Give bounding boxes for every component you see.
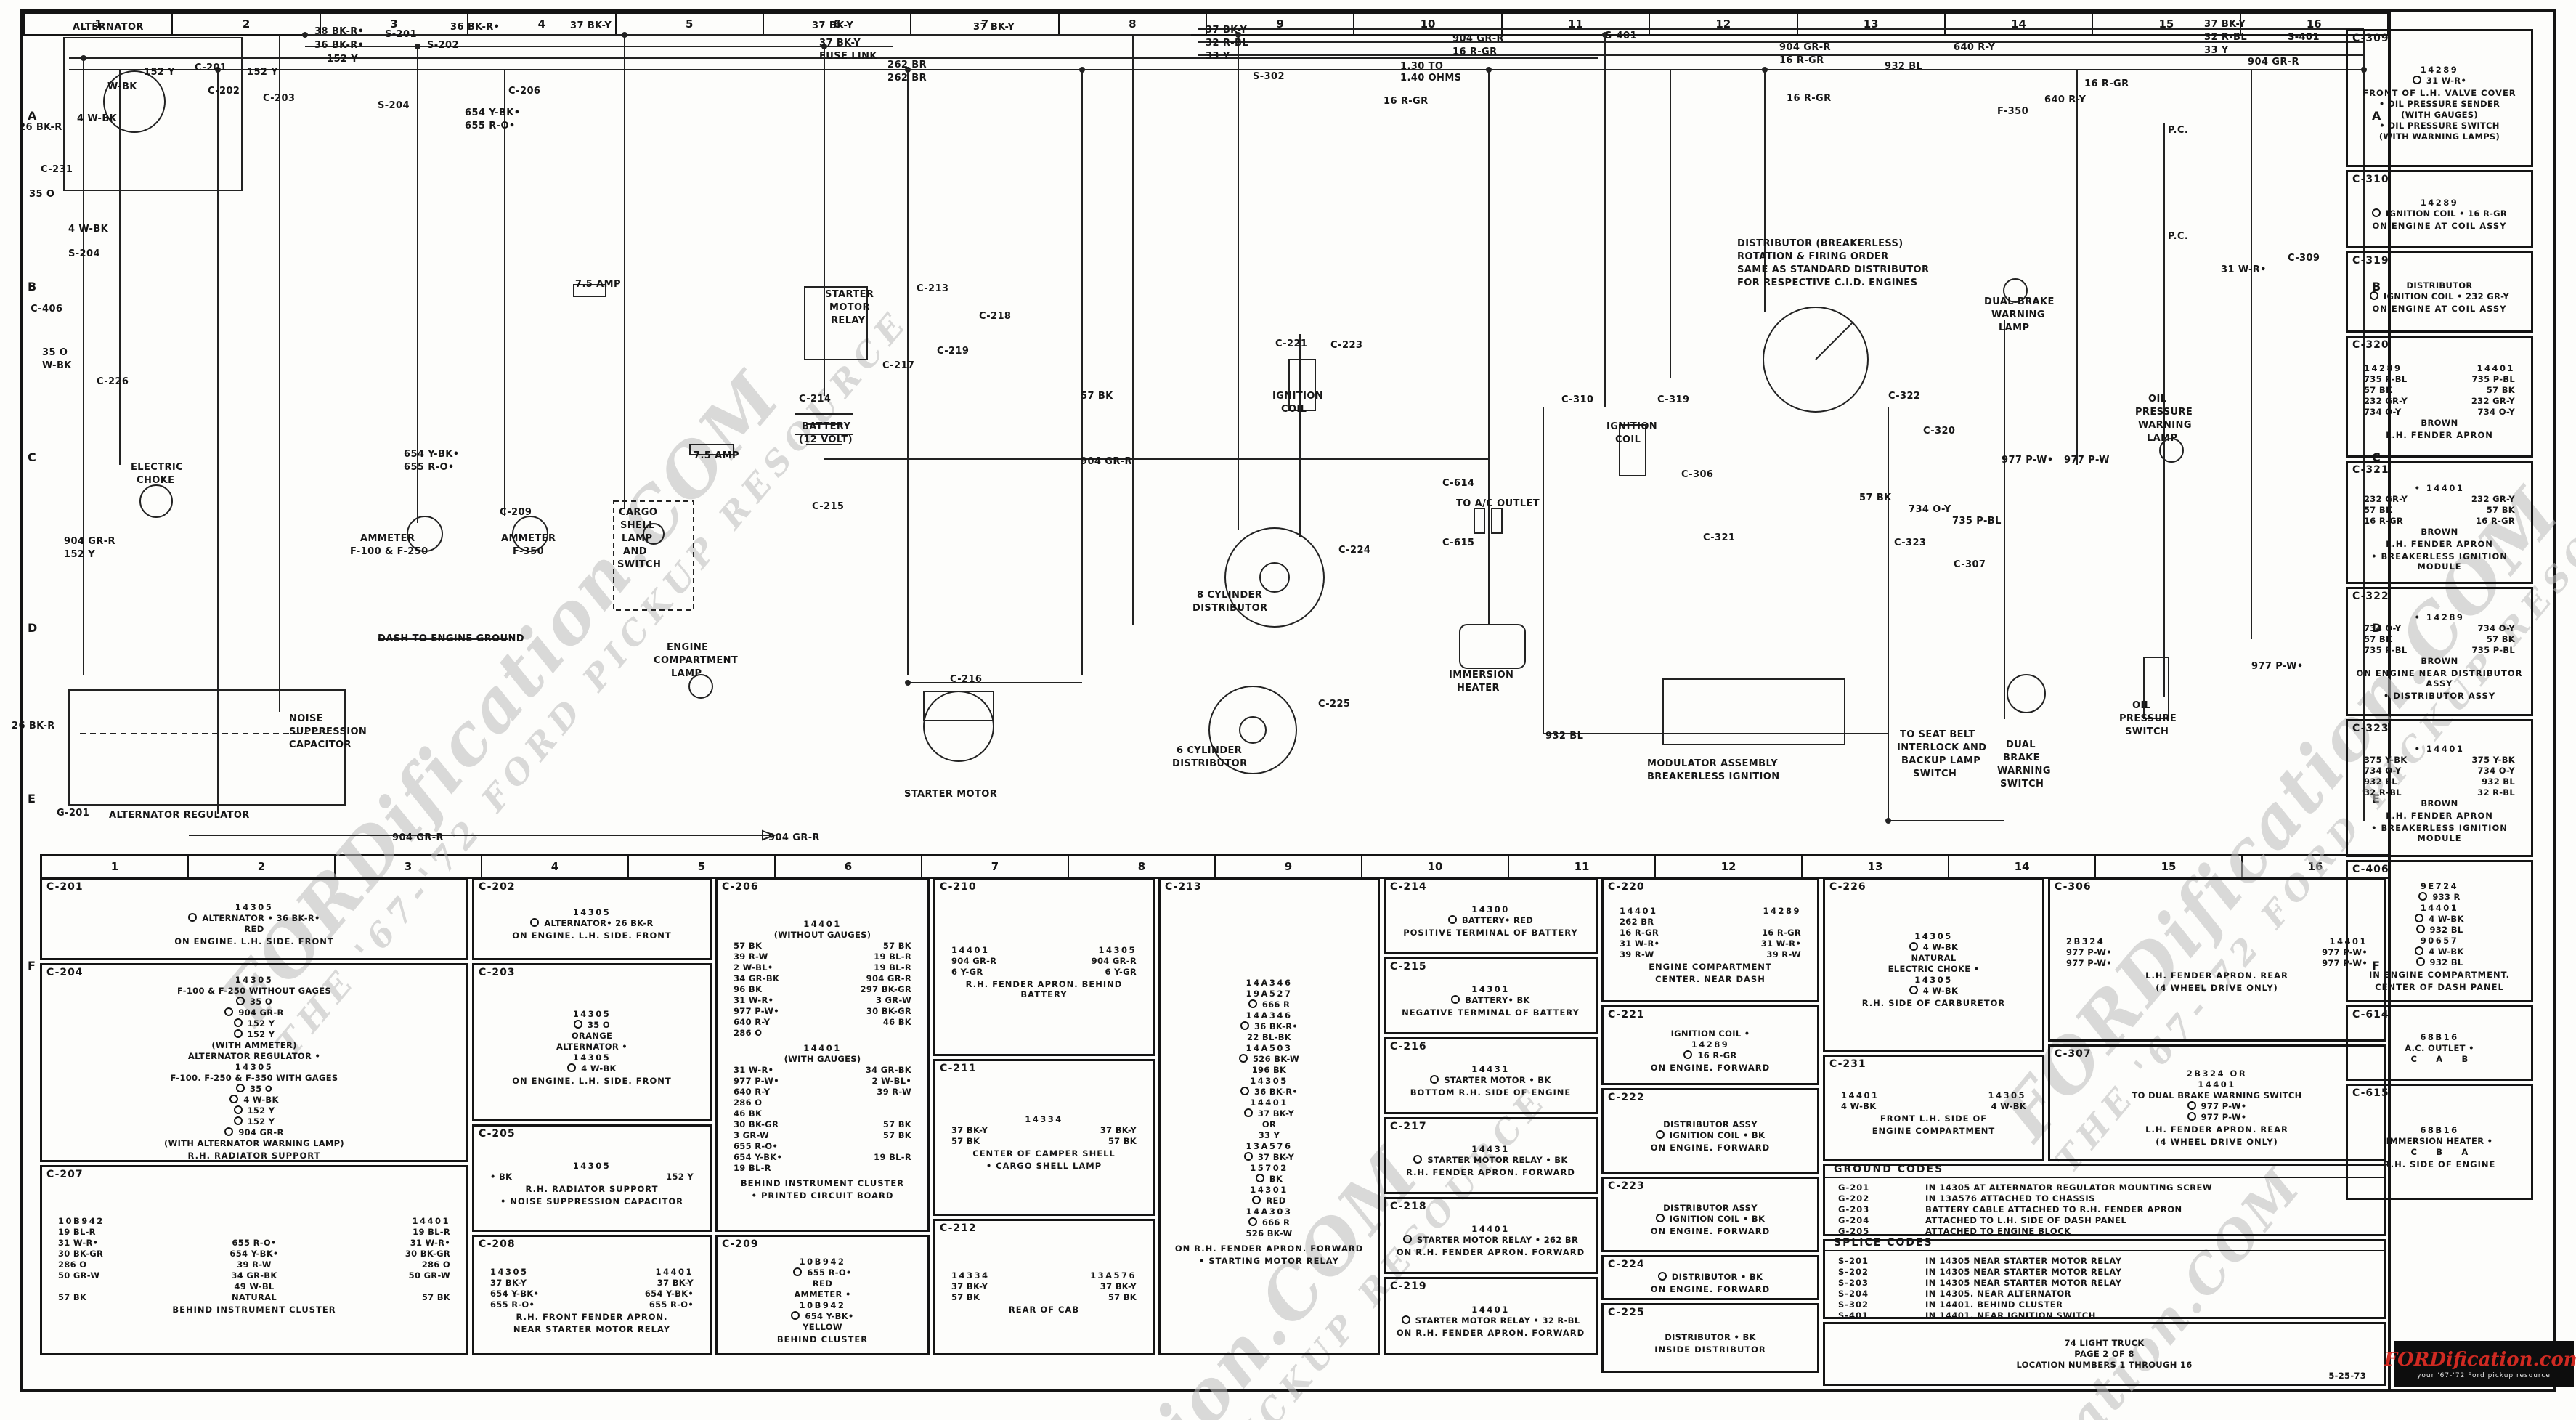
box-line: L.H. FENDER APRON bbox=[2354, 539, 2525, 549]
schematic-label: COMPARTMENT bbox=[654, 655, 738, 666]
box-line: 14305 bbox=[48, 975, 460, 985]
schematic-label: 7.5 AMP bbox=[694, 450, 739, 461]
schematic-label: IGNITION bbox=[1272, 391, 1323, 402]
box-line: ON ENGINE NEAR DISTRIBUTOR ASSY bbox=[2354, 668, 2525, 689]
box-line: 655 R-O• bbox=[723, 1267, 922, 1278]
detail-box-C-321: C-321• 14401232 GR-Y232 GR-Y57 BK57 BK16… bbox=[2346, 461, 2533, 584]
box-line: 90657 bbox=[2354, 936, 2525, 946]
box-line: ALTERNATOR • 36 BK-R• bbox=[48, 913, 460, 923]
schematic-label: DISTRIBUTOR bbox=[1172, 758, 1248, 769]
detail-box-C-214: C-21414300BATTERY• REDPOSITIVE TERMINAL … bbox=[1384, 877, 1598, 954]
schematic-label: F-350 bbox=[513, 546, 544, 557]
box-line: 286 O39 R-W286 O bbox=[48, 1259, 460, 1270]
detail-box-C-204: C-20414305F-100 & F-250 WITHOUT GAGES35 … bbox=[40, 963, 468, 1162]
schematic-label: C-217 bbox=[882, 360, 914, 371]
schematic-label: 640 R-Y bbox=[1954, 42, 1995, 53]
schematic-label: 152 Y bbox=[327, 54, 358, 65]
schematic-label: ROTATION & FIRING ORDER bbox=[1737, 251, 1889, 262]
schematic-label: SHELL bbox=[620, 520, 655, 531]
box-line: 152 Y bbox=[48, 1116, 460, 1127]
box-line: 37 BK-Y37 BK-Y bbox=[941, 1281, 1147, 1291]
box-line: IN ENGINE COMPARTMENT. bbox=[2354, 970, 2525, 980]
box-line: 5-25-73 bbox=[1831, 1371, 2378, 1381]
box-line: RED bbox=[723, 1278, 922, 1289]
box-line: 977 P-W•30 BK-GR bbox=[723, 1006, 922, 1016]
box-line: 977 P-W•977 P-W• bbox=[2056, 958, 2378, 968]
box-line: (WITHOUT GAUGES) bbox=[723, 930, 922, 940]
box-line: • BREAKERLESS IGNITION MODULE bbox=[2354, 823, 2525, 843]
box-line: 13A576 bbox=[1166, 1141, 1372, 1151]
box-line: STARTER MOTOR RELAY • 32 R-BL bbox=[1391, 1315, 1590, 1326]
box-line: 977 P-W• bbox=[2056, 1112, 2378, 1122]
detail-box-C-223: C-223DISTRIBUTOR ASSYIGNITION COIL • BKO… bbox=[1601, 1177, 1819, 1252]
box-id-label: C-219 bbox=[1390, 1281, 1427, 1292]
box-line: L.H. FENDER APRON bbox=[2354, 430, 2525, 440]
schematic-label: RELAY bbox=[831, 315, 865, 326]
schematic-label: C-213 bbox=[917, 283, 948, 294]
box-line: 666 R bbox=[1166, 999, 1372, 1010]
box-line: 35 O bbox=[48, 1084, 460, 1094]
schematic-label: STARTER bbox=[825, 289, 874, 300]
box-line: ON ENGINE. L.H. SIDE. FRONT bbox=[48, 936, 460, 946]
box-line: STARTER MOTOR • BK bbox=[1391, 1075, 1590, 1085]
schematic-label: C-215 bbox=[812, 501, 844, 512]
box-line: (4 WHEEL DRIVE ONLY) bbox=[2056, 983, 2378, 993]
schematic-label: C-206 bbox=[508, 86, 540, 97]
detail-box-C-209: C-20910B942655 R-O•REDAMMETER •10B942654… bbox=[715, 1235, 930, 1355]
schematic-label: DISTRIBUTOR (BREAKERLESS) bbox=[1737, 238, 1903, 249]
schematic-label: STARTER MOTOR bbox=[904, 789, 997, 800]
schematic-label: 7.5 AMP bbox=[575, 279, 621, 290]
schematic-label: C-209 bbox=[500, 507, 532, 518]
schematic-label: 932 BL bbox=[1885, 61, 1922, 72]
schematic-label: FUSE LINK bbox=[819, 51, 877, 62]
box-id-label: C-205 bbox=[479, 1128, 516, 1140]
detail-box-C-322: C-322• 14289734 O-Y734 O-Y57 BK57 BK735 … bbox=[2346, 587, 2533, 716]
detail-box-C-307: C-3072B324 OR14401TO DUAL BRAKE WARNING … bbox=[2048, 1044, 2386, 1161]
box-id-label: C-203 bbox=[479, 967, 516, 978]
schematic-label: 904 GR-R bbox=[1452, 33, 1504, 44]
box-line: 68B16 bbox=[2354, 1125, 2525, 1135]
box-line: R.H. FENDER APRON. FORWARD bbox=[1391, 1167, 1590, 1177]
schematic-label: TO A/C OUTLET bbox=[1456, 498, 1540, 509]
box-line: NATURAL bbox=[1831, 953, 2036, 963]
box-line: 14431 bbox=[1391, 1064, 1590, 1074]
box-line: 655 R-O•655 R-O• bbox=[480, 1299, 704, 1310]
detail-box-C-210: C-2101440114305904 GR-R904 GR-R6 Y-GR6 Y… bbox=[933, 877, 1155, 1056]
box-line: 39 R-W39 R-W bbox=[1609, 949, 1811, 959]
schematic-label: 977 P-W• bbox=[2002, 455, 2054, 466]
box-line: 4 W-BK4 W-BK bbox=[1831, 1101, 2036, 1111]
box-id-label: C-202 bbox=[479, 881, 516, 893]
schematic-label: 16 R-GR bbox=[1787, 93, 1832, 104]
schematic-label: 32 R-BL bbox=[1206, 38, 1248, 49]
schematic-label: P.C. bbox=[2168, 231, 2188, 242]
schematic-label: C-615 bbox=[1442, 537, 1474, 548]
schematic-label: 26 BK-R bbox=[12, 721, 55, 731]
box-line: 16 R-GR bbox=[1609, 1050, 1811, 1060]
box-line: 232 GR-Y232 GR-Y bbox=[2354, 494, 2525, 504]
schematic-label: C-231 bbox=[41, 164, 73, 175]
box-line: S-203IN 14305 NEAR STARTER MOTOR RELAY bbox=[1831, 1278, 2378, 1288]
schematic-label: W-BK bbox=[42, 360, 72, 371]
schematic-label: 16 R-GR bbox=[1452, 46, 1498, 57]
detail-box-C-226: C-226143054 W-BKNATURALELECTRIC CHOKE •1… bbox=[1823, 877, 2044, 1052]
box-line: 14289 bbox=[2354, 198, 2525, 208]
schematic-label: 37 BK-Y bbox=[2204, 19, 2246, 30]
box-line: 16 R-GR16 R-GR bbox=[2354, 516, 2525, 526]
detail-box-C-219: C-21914401STARTER MOTOR RELAY • 32 R-BLO… bbox=[1384, 1277, 1598, 1355]
schematic-label: P.C. bbox=[2168, 125, 2188, 136]
box-line: 10B942 bbox=[723, 1300, 922, 1310]
box-line: G-205ATTACHED TO ENGINE BLOCK bbox=[1831, 1226, 2378, 1236]
schematic-label: DUAL BRAKE bbox=[1984, 296, 2055, 307]
schematic-label: 57 BK bbox=[1859, 492, 1892, 503]
schematic-label: 37 BK-Y bbox=[973, 22, 1015, 33]
box-line: 14334 bbox=[941, 1114, 1147, 1124]
box-line: 14431 bbox=[1391, 1144, 1590, 1154]
box-line: BATTERY• RED bbox=[1391, 915, 1590, 925]
box-line: INSIDE DISTRIBUTOR bbox=[1609, 1344, 1811, 1355]
box-line: ELECTRIC CHOKE • bbox=[1831, 964, 2036, 974]
schematic-label: 904 GR-R bbox=[1779, 42, 1831, 53]
box-line: 904 GR-R bbox=[48, 1127, 460, 1137]
box-line: 2B324 OR bbox=[2056, 1068, 2378, 1079]
box-line: 1428914401 bbox=[2354, 363, 2525, 373]
box-id-label: C-208 bbox=[479, 1238, 516, 1250]
panel-TITLE: 74 LIGHT TRUCKPAGE 2 OF 8LOCATION NUMBER… bbox=[1823, 1322, 2386, 1386]
schematic-label: C-214 bbox=[799, 394, 831, 405]
schematic-label: PRESSURE bbox=[2119, 713, 2177, 724]
box-line: 932 BL932 BL bbox=[2354, 776, 2525, 787]
box-line: • BK152 Y bbox=[480, 1172, 704, 1182]
schematic-label: C-406 bbox=[31, 304, 62, 315]
schematic-label: CARGO bbox=[619, 507, 657, 518]
schematic-label: 6 CYLINDER bbox=[1177, 745, 1242, 756]
schematic-label: IGNITION bbox=[1606, 421, 1657, 432]
detail-box-C-213: C-21314A34619A527666 R14A34636 BK-R•22 B… bbox=[1158, 877, 1380, 1355]
box-line: IGNITION COIL • BK bbox=[1609, 1130, 1811, 1140]
schematic-label: 38 BK-R• bbox=[314, 26, 364, 37]
box-line: 1430514401 bbox=[480, 1267, 704, 1277]
box-id-label: C-212 bbox=[940, 1222, 977, 1234]
box-line: AMMETER • bbox=[723, 1289, 922, 1299]
box-line: 10B942 bbox=[723, 1257, 922, 1267]
box-line: STARTER MOTOR RELAY • 262 BR bbox=[1391, 1235, 1590, 1245]
detail-box-C-207: C-20710B9421440119 BL-R19 BL-R31 W-R•655… bbox=[40, 1165, 468, 1355]
detail-box-C-221: C-221IGNITION COIL •1428916 R-GRON ENGIN… bbox=[1601, 1005, 1819, 1085]
schematic-label: CAPACITOR bbox=[289, 739, 352, 750]
schematic-label: BATTERY bbox=[802, 421, 850, 432]
schematic-label: 57 BK bbox=[1081, 391, 1113, 402]
box-line: 14401 bbox=[2354, 903, 2525, 913]
schematic-label: C-219 bbox=[937, 346, 969, 357]
box-line: 14289 bbox=[1609, 1039, 1811, 1050]
box-line: 36 BK-R• bbox=[1166, 1021, 1372, 1031]
detail-box-C-222: C-222DISTRIBUTOR ASSYIGNITION COIL • BKO… bbox=[1601, 1088, 1819, 1174]
box-line: G-204ATTACHED TO L.H. SIDE OF DASH PANEL bbox=[1831, 1215, 2378, 1225]
box-line: 1440114289 bbox=[1609, 906, 1811, 916]
box-line: DISTRIBUTOR ASSY bbox=[1609, 1119, 1811, 1129]
box-id-label: C-218 bbox=[1390, 1201, 1427, 1212]
schematic-label: AMMETER bbox=[501, 533, 556, 544]
schematic-label: AND bbox=[623, 546, 647, 557]
detail-box-C-203: C-2031430535 OORANGEALTERNATOR •143054 W… bbox=[472, 963, 712, 1121]
schematic-label: 36 BK-R• bbox=[314, 40, 364, 51]
box-line: 655 R-O• bbox=[723, 1141, 922, 1151]
schematic-label: 654 Y-BK• bbox=[465, 107, 520, 118]
box-id-label: C-214 bbox=[1390, 881, 1427, 893]
schematic-label: LAMP bbox=[1999, 322, 2029, 333]
detail-box-C-206: C-20614401(WITHOUT GAUGES)57 BK57 BK39 R… bbox=[715, 877, 930, 1232]
box-line: ON ENGINE. FORWARD bbox=[1609, 1284, 1811, 1294]
box-line: ON ENGINE AT COIL ASSY bbox=[2354, 221, 2525, 231]
detail-box-C-211: C-2111433437 BK-Y37 BK-Y57 BK57 BKCENTER… bbox=[933, 1059, 1155, 1216]
schematic-label: 33 Y bbox=[2204, 45, 2229, 56]
box-line: 654 Y-BK•654 Y-BK• bbox=[480, 1289, 704, 1299]
box-line: R.H. RADIATOR SUPPORT bbox=[48, 1151, 460, 1161]
box-line: OR bbox=[1166, 1119, 1372, 1129]
schematic-label: OIL bbox=[2132, 700, 2150, 711]
schematic-label: 8 CYLINDER bbox=[1197, 590, 1262, 601]
fordification-logo: FORDification.com your '67-'72 Ford pick… bbox=[2394, 1341, 2574, 1387]
box-line: 4 W-BK bbox=[1831, 986, 2036, 996]
box-line: A.C. OUTLET • bbox=[2354, 1043, 2525, 1053]
schematic-label: WARNING bbox=[1997, 766, 2051, 776]
detail-box-C-205: C-20514305• BK152 YR.H. RADIATOR SUPPORT… bbox=[472, 1124, 712, 1232]
box-line: 14A346 bbox=[1166, 978, 1372, 988]
box-line: BEHIND INSTRUMENT CLUSTER bbox=[723, 1178, 922, 1188]
box-line: ON R.H. FENDER APRON. FORWARD bbox=[1391, 1328, 1590, 1338]
box-line: (WITH AMMETER) bbox=[48, 1040, 460, 1050]
box-id-label: C-309 bbox=[2352, 33, 2389, 44]
box-line: 14401 bbox=[2056, 1079, 2378, 1090]
box-line: 2B32414401 bbox=[2056, 936, 2378, 946]
box-line: • NOISE SUPPRESSION CAPACITOR bbox=[480, 1196, 704, 1206]
box-line: 734 O-Y734 O-Y bbox=[2354, 766, 2525, 776]
box-line: G-203BATTERY CABLE ATTACHED TO R.H. FEND… bbox=[1831, 1204, 2378, 1214]
box-line: ORANGE bbox=[480, 1031, 704, 1041]
schematic-label: C-216 bbox=[950, 674, 982, 685]
schematic-label: C-322 bbox=[1888, 391, 1920, 402]
schematic-label: OIL bbox=[2148, 394, 2166, 405]
box-line: 654 Y-BK•19 BL-R bbox=[723, 1152, 922, 1162]
detail-box-C-319: C-319DISTRIBUTORIGNITION COIL • 232 GR-Y… bbox=[2346, 251, 2533, 333]
schematic-label: 904 GR-R bbox=[768, 832, 820, 843]
box-line: LOCATION NUMBERS 1 THROUGH 16 bbox=[1831, 1360, 2378, 1370]
schematic-label: LAMP bbox=[2147, 433, 2177, 444]
box-line: 232 GR-Y232 GR-Y bbox=[2354, 396, 2525, 406]
box-line: 57 BK57 BK bbox=[941, 1136, 1147, 1146]
box-line: IMMERSION HEATER • bbox=[2354, 1136, 2525, 1146]
box-line: 15702 bbox=[1166, 1163, 1372, 1173]
box-line: 57 BK57 BK bbox=[2354, 505, 2525, 515]
box-line: 37 BK-Y bbox=[1166, 1152, 1372, 1162]
box-line: 14301 bbox=[1166, 1185, 1372, 1195]
schematic-label: BRAKE bbox=[2003, 752, 2040, 763]
box-line: ON ENGINE AT COIL ASSY bbox=[2354, 304, 2525, 314]
box-line: 904 GR-R904 GR-R bbox=[941, 956, 1147, 966]
box-line: 14289 bbox=[2354, 65, 2525, 75]
schematic-label: 735 P-BL bbox=[1952, 516, 2002, 527]
box-line: TO DUAL BRAKE WARNING SWITCH bbox=[2056, 1090, 2378, 1100]
schematic-label: F-350 bbox=[1997, 106, 2028, 117]
box-id-label: C-307 bbox=[2055, 1048, 2092, 1060]
schematic-label: SWITCH bbox=[617, 559, 661, 570]
box-line: POSITIVE TERMINAL OF BATTERY bbox=[1391, 928, 1590, 938]
box-line: 4 W-BK bbox=[48, 1095, 460, 1105]
schematic-label: 35 O bbox=[29, 189, 54, 200]
logo-title: FORDification.com bbox=[2384, 1349, 2576, 1371]
schematic-label: C-203 bbox=[263, 93, 295, 104]
box-line: 14305 bbox=[1166, 1076, 1372, 1086]
box-line: ALTERNATOR• 26 BK-R bbox=[480, 918, 704, 928]
box-line: 9E724 bbox=[2354, 881, 2525, 891]
box-line: ENGINE COMPARTMENT bbox=[1831, 1126, 2036, 1136]
schematic-label: C-223 bbox=[1330, 340, 1362, 351]
box-line: 286 O bbox=[723, 1028, 922, 1038]
schematic-label: IMMERSION bbox=[1449, 670, 1513, 681]
box-line: DISTRIBUTOR • BK bbox=[1609, 1332, 1811, 1342]
schematic-label: NOISE bbox=[289, 713, 323, 724]
box-line: ON ENGINE. FORWARD bbox=[1609, 1143, 1811, 1153]
box-line: 286 O bbox=[723, 1098, 922, 1108]
box-line: ON R.H. FENDER APRON. FORWARD bbox=[1166, 1243, 1372, 1254]
box-id-label: C-207 bbox=[46, 1169, 84, 1180]
schematic-label: 640 R-Y bbox=[2044, 94, 2086, 105]
schematic-label: FOR RESPECTIVE C.I.D. ENGINES bbox=[1737, 277, 1917, 288]
logo-tagline: your '67-'72 Ford pickup resource bbox=[2417, 1372, 2551, 1379]
schematic-label: AMMETER bbox=[360, 533, 415, 544]
schematic-label: BREAKERLESS IGNITION bbox=[1647, 771, 1780, 782]
schematic-label: 4 W-BK bbox=[68, 224, 108, 235]
box-line: 74 LIGHT TRUCK bbox=[1831, 1338, 2378, 1348]
schematic-label: ALTERNATOR REGULATOR bbox=[109, 810, 250, 821]
box-id-label: C-321 bbox=[2352, 464, 2389, 476]
box-line: L.H. FENDER APRON. REAR bbox=[2056, 1124, 2378, 1135]
box-line: 3 GR-W57 BK bbox=[723, 1130, 922, 1140]
schematic-label: C-321 bbox=[1703, 532, 1735, 543]
box-line: • BREAKERLESS IGNITION MODULE bbox=[2354, 551, 2525, 572]
box-line: 2 W-BL•19 BL-R bbox=[723, 962, 922, 973]
schematic-label: 1.30 TO bbox=[1400, 61, 1443, 72]
box-id-label: C-206 bbox=[722, 881, 759, 893]
panel-GROUND CODES: GROUND CODESG-201IN 14305 AT ALTERNATOR … bbox=[1823, 1164, 2386, 1236]
box-line: CENTER OF DASH PANEL bbox=[2354, 982, 2525, 992]
box-line: (WITH GAUGES) bbox=[723, 1054, 922, 1064]
schematic-label: 16 R-GR bbox=[1384, 96, 1429, 107]
box-line: 734 O-Y734 O-Y bbox=[2354, 407, 2525, 417]
box-line: CBA bbox=[2354, 1147, 2525, 1157]
box-line: G-202IN 13A576 ATTACHED TO CHASSIS bbox=[1831, 1193, 2378, 1204]
schematic-label: W-BK bbox=[107, 81, 137, 92]
box-line: 16 R-GR16 R-GR bbox=[1609, 928, 1811, 938]
box-line: 977 P-W• bbox=[2056, 1101, 2378, 1111]
box-line: 933 R bbox=[2354, 892, 2525, 902]
box-id-label: C-320 bbox=[2352, 339, 2389, 351]
box-line: • STARTING MOTOR RELAY bbox=[1166, 1256, 1372, 1266]
box-line: • DISTRIBUTOR ASSY bbox=[2354, 691, 2525, 701]
box-line: 152 Y bbox=[48, 1029, 460, 1039]
schematic-label: C-226 bbox=[97, 376, 129, 387]
box-line: 14A346 bbox=[1166, 1010, 1372, 1021]
box-line: R.H. FENDER APRON. BEHIND BATTERY bbox=[941, 979, 1147, 999]
detail-box-C-212: C-2121433413A57637 BK-Y37 BK-Y57 BK57 BK… bbox=[933, 1219, 1155, 1355]
box-line: F-100 & F-250 WITHOUT GAGES bbox=[48, 986, 460, 996]
box-line: 14305 bbox=[480, 1052, 704, 1063]
box-line: S-202IN 14305 NEAR STARTER MOTOR RELAY bbox=[1831, 1267, 2378, 1277]
schematic-label: C-306 bbox=[1681, 469, 1713, 480]
box-line: • 14401 bbox=[2354, 483, 2525, 493]
schematic-label: WARNING bbox=[2138, 420, 2192, 431]
box-line: 14A303 bbox=[1166, 1206, 1372, 1217]
schematic-label: 35 O bbox=[42, 347, 68, 358]
schematic-label: PRESSURE bbox=[2135, 407, 2193, 418]
box-line: 14A503 bbox=[1166, 1043, 1372, 1053]
box-line: 262 BR bbox=[1609, 917, 1811, 927]
box-line: REAR OF CAB bbox=[941, 1305, 1147, 1315]
schematic-label: ELECTRIC bbox=[131, 462, 183, 473]
box-line: 1440114305 bbox=[1831, 1090, 2036, 1100]
schematic-label: 977 P-W• bbox=[2251, 661, 2304, 672]
box-line: L.H. FENDER APRON. REAR bbox=[2056, 970, 2378, 981]
box-line: 33 Y bbox=[1166, 1130, 1372, 1140]
schematic-label: S-401 bbox=[2288, 32, 2320, 43]
box-line: G-201IN 14305 AT ALTERNATOR REGULATOR MO… bbox=[1831, 1182, 2378, 1193]
detail-box-C-231: C-23114401143054 W-BK4 W-BKFRONT L.H. SI… bbox=[1823, 1055, 2044, 1161]
box-line: RED bbox=[48, 924, 460, 934]
box-line: 152 Y bbox=[48, 1105, 460, 1116]
box-line: 37 BK-Y bbox=[1166, 1108, 1372, 1119]
box-id-label: C-223 bbox=[1608, 1180, 1645, 1192]
box-line: (WITH GAUGES) bbox=[2354, 110, 2525, 120]
box-id-label: C-221 bbox=[1608, 1009, 1645, 1021]
box-line: 57 BK57 BK bbox=[941, 1292, 1147, 1302]
box-line: 14305 bbox=[48, 1062, 460, 1072]
box-line: BEHIND INSTRUMENT CLUSTER bbox=[48, 1305, 460, 1315]
box-line: 640 R-Y39 R-W bbox=[723, 1087, 922, 1097]
box-id-label: C-323 bbox=[2352, 723, 2389, 734]
box-line: SPLICE CODES bbox=[1825, 1238, 2384, 1251]
schematic-label: CHOKE bbox=[137, 475, 174, 486]
schematic-label: C-310 bbox=[1561, 394, 1593, 405]
schematic-label: DISTRIBUTOR bbox=[1192, 603, 1268, 614]
box-line: ON R.H. FENDER APRON. FORWARD bbox=[1391, 1247, 1590, 1257]
box-line: 14305 bbox=[1831, 931, 2036, 941]
schematic-label: 904 GR-R bbox=[2248, 57, 2299, 68]
box-id-label: C-204 bbox=[46, 967, 84, 978]
box-id-label: C-224 bbox=[1608, 1259, 1645, 1270]
box-line: ON ENGINE. L.H. SIDE. FRONT bbox=[480, 930, 704, 941]
box-id-label: C-222 bbox=[1608, 1092, 1645, 1103]
detail-box-C-217: C-21714431STARTER MOTOR RELAY • BKR.H. F… bbox=[1384, 1117, 1598, 1194]
box-line: 14305 bbox=[1831, 975, 2036, 985]
box-line: 19 BL-R19 BL-R bbox=[48, 1227, 460, 1237]
schematic-label: G-201 bbox=[57, 808, 89, 819]
box-line: 735 P-BL735 P-BL bbox=[2354, 645, 2525, 655]
schematic-label: C-614 bbox=[1442, 478, 1474, 489]
box-line: S-401IN 14401. NEAR IGNITION SWITCH bbox=[1831, 1310, 2378, 1320]
box-line: 735 P-BL735 P-BL bbox=[2354, 374, 2525, 384]
panel-SPLICE CODES: SPLICE CODESS-201IN 14305 NEAR STARTER M… bbox=[1823, 1239, 2386, 1319]
schematic-label: C-307 bbox=[1954, 559, 1986, 570]
detail-box-C-215: C-21514301BATTERY• BKNEGATIVE TERMINAL O… bbox=[1384, 957, 1598, 1034]
detail-box-C-201: C-20114305ALTERNATOR • 36 BK-R•REDON ENG… bbox=[40, 877, 468, 960]
box-id-label: C-213 bbox=[1165, 881, 1202, 893]
box-line: 35 O bbox=[48, 997, 460, 1007]
box-id-label: C-217 bbox=[1390, 1121, 1427, 1132]
box-line: R.H. FRONT FENDER APRON. bbox=[480, 1312, 704, 1322]
